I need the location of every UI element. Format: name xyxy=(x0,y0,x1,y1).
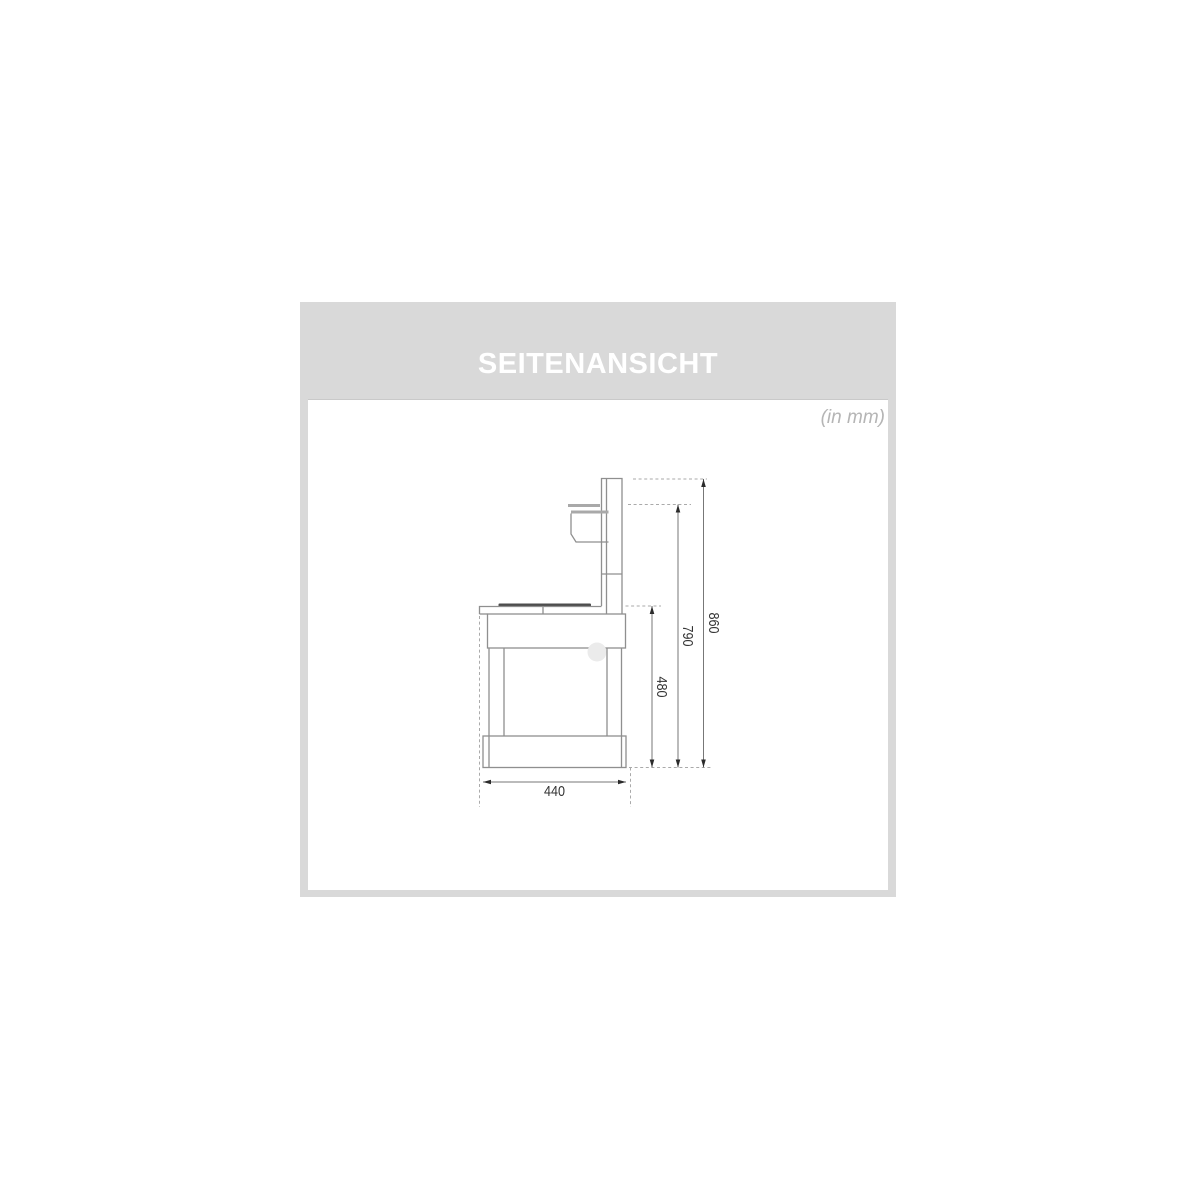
base-outline xyxy=(483,736,626,768)
apron-frame xyxy=(488,614,626,648)
dim-label-860: 860 xyxy=(705,613,722,634)
dim-label-790: 790 xyxy=(679,626,696,647)
worktop xyxy=(480,604,626,662)
arrowhead-790-top xyxy=(676,505,681,513)
panel-header: SEITENANSICHT xyxy=(300,302,896,399)
arrowhead-440-left xyxy=(483,780,491,785)
seitenansicht-panel: SEITENANSICHT (in mm) xyxy=(300,302,896,897)
dimension-480: 480 xyxy=(650,606,670,768)
dim-label-440: 440 xyxy=(544,783,565,800)
dim-label-480: 480 xyxy=(653,677,670,698)
dimension-860: 860 xyxy=(701,479,722,768)
arrowhead-480-top xyxy=(650,606,655,614)
arrowhead-860-bottom xyxy=(701,760,706,768)
arrowhead-440-right xyxy=(618,780,626,785)
back-panel-outline xyxy=(602,479,623,615)
sink-rim-bar xyxy=(568,504,600,507)
side-view-drawing: 480 790 860 xyxy=(308,400,888,890)
dimension-440: 440 xyxy=(483,780,626,800)
sink-shelf xyxy=(568,504,609,542)
worktop-top-edge xyxy=(480,607,602,615)
dimension-790: 790 xyxy=(676,505,696,768)
knob-circle xyxy=(588,643,607,662)
sink-upper-bar xyxy=(571,511,609,514)
legs-and-base xyxy=(483,648,626,768)
page: SEITENANSICHT (in mm) xyxy=(0,0,1200,1200)
panel-title: SEITENANSICHT xyxy=(478,350,718,379)
arrowhead-790-bottom xyxy=(676,760,681,768)
arrowhead-480-bottom xyxy=(650,760,655,768)
arrowhead-860-top xyxy=(701,479,706,487)
drawing-area: (in mm) xyxy=(308,399,888,890)
sink-bowl-outline xyxy=(571,514,609,543)
back-panel xyxy=(602,479,623,615)
